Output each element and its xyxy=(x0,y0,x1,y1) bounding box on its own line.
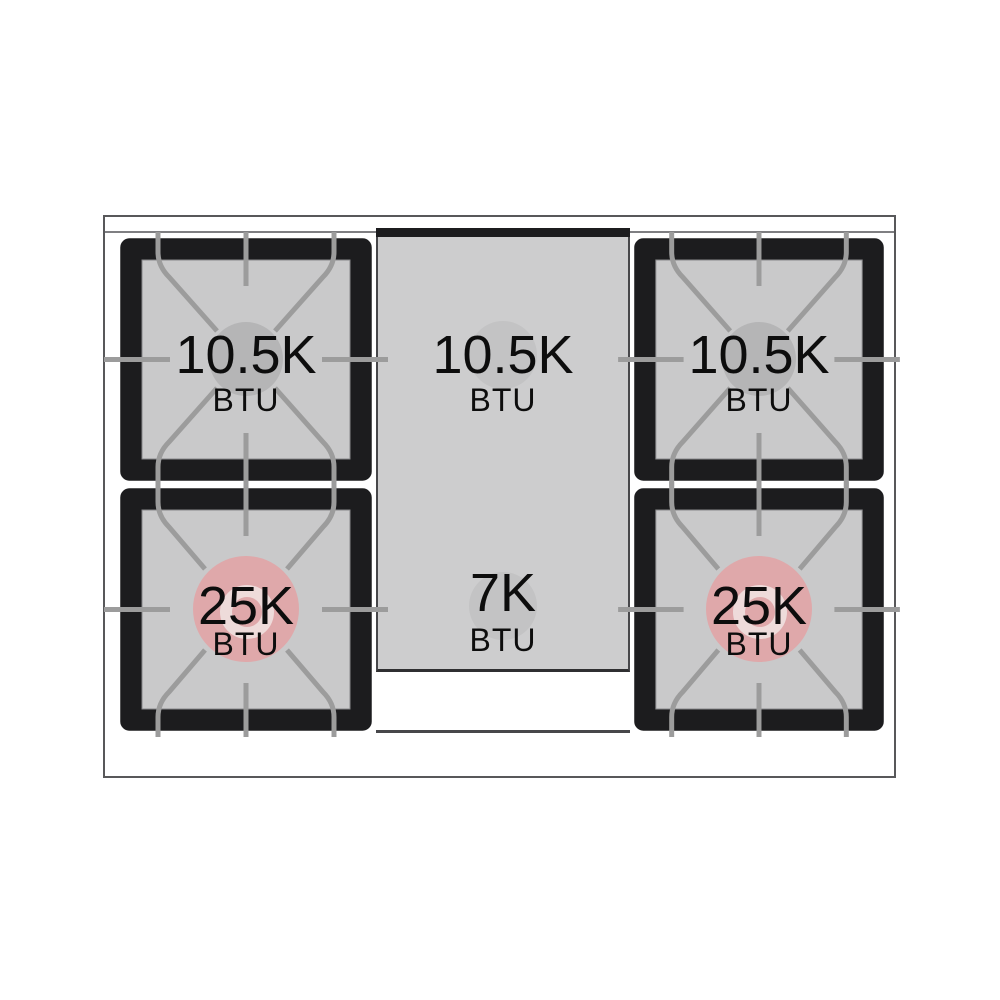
griddle-front-panel xyxy=(378,672,628,730)
btu-value-front-right: 25K xyxy=(632,579,886,633)
cooktop-diagram: 10.5K BTU 10.5K BTU 10.5K BTU 25K BTU 7K… xyxy=(0,0,1000,1000)
btu-value-front-left: 25K xyxy=(118,579,374,633)
btu-unit-rear-left: BTU xyxy=(118,384,374,416)
btu-unit-front-left: BTU xyxy=(118,628,374,660)
btu-unit-rear-right: BTU xyxy=(632,384,886,416)
btu-value-center-front: 7K xyxy=(376,566,630,620)
btu-unit-center-front: BTU xyxy=(376,624,630,656)
griddle-front-line xyxy=(376,730,630,733)
btu-value-center-rear: 10.5K xyxy=(376,328,630,382)
btu-unit-center-rear: BTU xyxy=(376,384,630,416)
btu-unit-front-right: BTU xyxy=(632,628,886,660)
btu-value-rear-right: 10.5K xyxy=(632,328,886,382)
btu-value-rear-left: 10.5K xyxy=(118,328,374,382)
griddle-back-bar xyxy=(376,228,630,237)
